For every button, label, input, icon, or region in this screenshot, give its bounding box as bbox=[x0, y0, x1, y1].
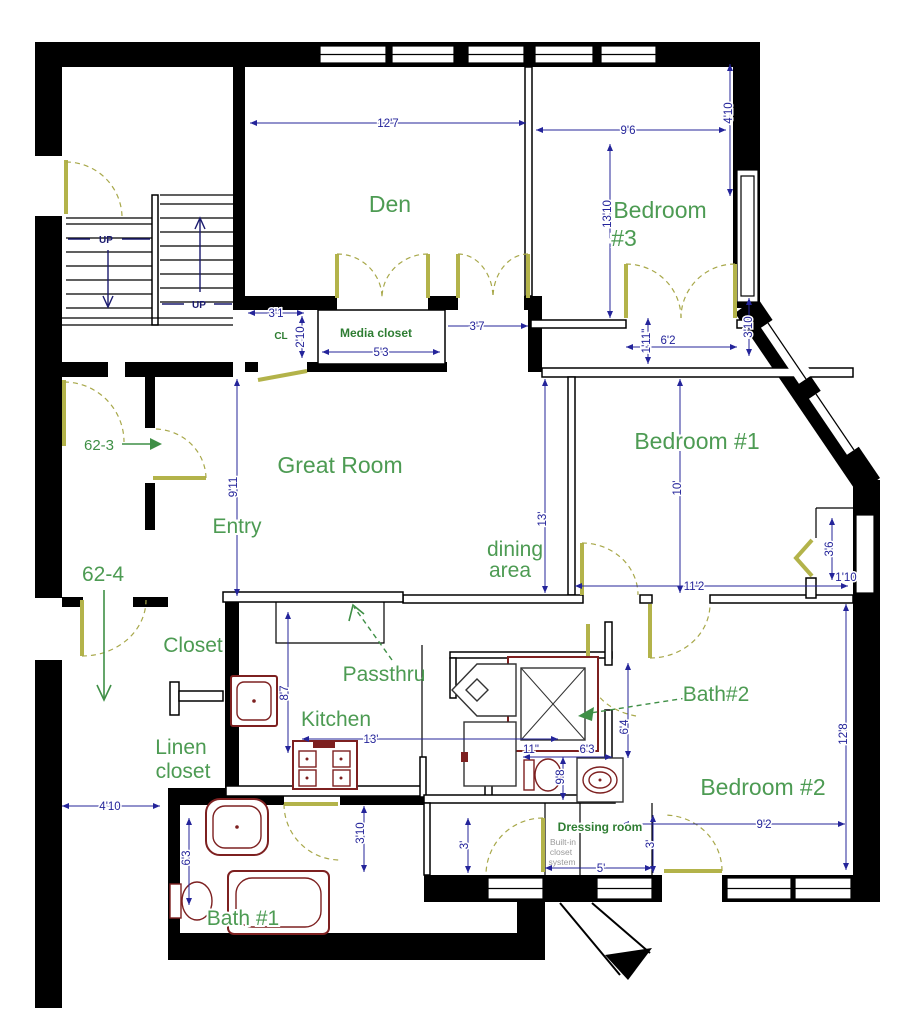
dim-kitchen-depth: 8'7 bbox=[279, 686, 291, 701]
builtin-closet-line2: closet bbox=[550, 847, 573, 857]
bath2-corner-cabinet bbox=[452, 664, 516, 716]
up-label-left: UP bbox=[99, 235, 113, 246]
dim-bed2-width: 9'2 bbox=[757, 819, 772, 831]
bath1-toilet bbox=[170, 882, 212, 920]
dim-bed3-door: 6'2 bbox=[661, 335, 676, 347]
dim-bed2-depth: 12'8 bbox=[838, 723, 850, 744]
dim-dress-width: 5' bbox=[597, 863, 606, 875]
up-label-right: UP bbox=[192, 300, 206, 311]
dim-cl-depth: 2'10 bbox=[295, 326, 307, 347]
dim-toilet-width: 11" bbox=[523, 744, 539, 756]
unit-62-3-label: 62-3 bbox=[84, 437, 114, 454]
dim-entry-height: 9'11 bbox=[228, 477, 240, 498]
room-label-entry: Entry bbox=[212, 515, 262, 538]
room-label-den: Den bbox=[369, 191, 411, 217]
bedroom1-closet-bifold bbox=[796, 540, 812, 576]
room-label-bath1: Bath #1 bbox=[207, 907, 279, 930]
dim-bed1-depth: 10' bbox=[672, 481, 684, 496]
terrace-steps bbox=[560, 903, 652, 980]
room-label-bedroom1: Bedroom #1 bbox=[634, 428, 759, 454]
room-label-closet: Closet bbox=[163, 634, 223, 657]
dim-media-width: 5'3 bbox=[374, 347, 389, 359]
dim-bath2-height: 9'8 bbox=[555, 770, 567, 785]
room-label-linen-line2: closet bbox=[156, 760, 211, 783]
dim-bed1-closet-depth: 3'6 bbox=[824, 542, 836, 557]
dim-bath2-depth: 6'4 bbox=[619, 719, 631, 735]
builtin-closet-line1: Built-in bbox=[550, 837, 576, 847]
dim-kitchen-width: 13' bbox=[364, 734, 379, 746]
dim-bath1-door: 3'10 bbox=[355, 822, 367, 843]
staircase bbox=[62, 195, 233, 325]
floor-plan: Den Bedroom #3 Bedroom #1 Great Room Ent… bbox=[0, 0, 916, 1014]
dim-bed3-jamb: 1'11" bbox=[641, 329, 653, 354]
stove bbox=[293, 741, 357, 789]
room-label-kitchen: Kitchen bbox=[301, 708, 371, 731]
dim-den-width: 12'7 bbox=[377, 118, 398, 130]
builtin-closet-line3: system bbox=[549, 857, 576, 867]
dim-bed3-height: 13'10 bbox=[602, 200, 614, 228]
dim-dress-left: 3' bbox=[459, 841, 471, 850]
dim-bed1-closet-width: 1'10 bbox=[835, 572, 856, 584]
floor-plan-canvas: Den Bedroom #3 Bedroom #1 Great Room Ent… bbox=[0, 0, 916, 1014]
cl-closet-door-leaf bbox=[258, 371, 307, 380]
room-label-bedroom2: Bedroom #2 bbox=[700, 774, 825, 800]
room-label-bedroom3-line1: Bedroom bbox=[613, 197, 706, 223]
room-label-dining-line1: dining bbox=[487, 538, 543, 561]
room-label-media-closet: Media closet bbox=[340, 326, 412, 340]
room-label-great-room: Great Room bbox=[277, 452, 402, 478]
room-label-bath2: Bath#2 bbox=[683, 683, 750, 706]
dim-dress-right: 3' bbox=[645, 840, 657, 849]
dim-bed3-window: 3'10 bbox=[743, 316, 755, 337]
dim-bath2-width: 6'3 bbox=[580, 744, 595, 756]
shower bbox=[508, 657, 598, 751]
dim-bath1-depth: 6'3 bbox=[181, 851, 193, 866]
dim-hall-opening: 3'7 bbox=[470, 321, 485, 333]
room-label-passthru: Passthru bbox=[343, 663, 426, 686]
dim-hall-width: 4'10 bbox=[99, 801, 120, 813]
dim-dining-depth: 13' bbox=[537, 512, 549, 527]
room-label-dressing-room: Dressing room bbox=[558, 820, 643, 834]
dim-bed3-side: 4'10 bbox=[723, 102, 735, 123]
bath2-sink bbox=[577, 758, 623, 802]
dim-cl-width: 3'1 bbox=[269, 308, 284, 320]
dim-bed1-width: 11'2 bbox=[684, 581, 705, 593]
bath1-sink bbox=[206, 799, 268, 855]
dim-bed3-width: 9'6 bbox=[621, 125, 636, 137]
room-label-cl: CL bbox=[274, 331, 287, 342]
unit-62-4-label: 62-4 bbox=[82, 563, 124, 586]
bath2-vanity bbox=[461, 722, 516, 786]
room-label-linen-line1: Linen bbox=[155, 736, 206, 759]
room-label-bedroom3-line2: #3 bbox=[611, 225, 637, 251]
room-label-dining-line2: area bbox=[489, 559, 531, 582]
kitchen-sink bbox=[231, 676, 277, 726]
